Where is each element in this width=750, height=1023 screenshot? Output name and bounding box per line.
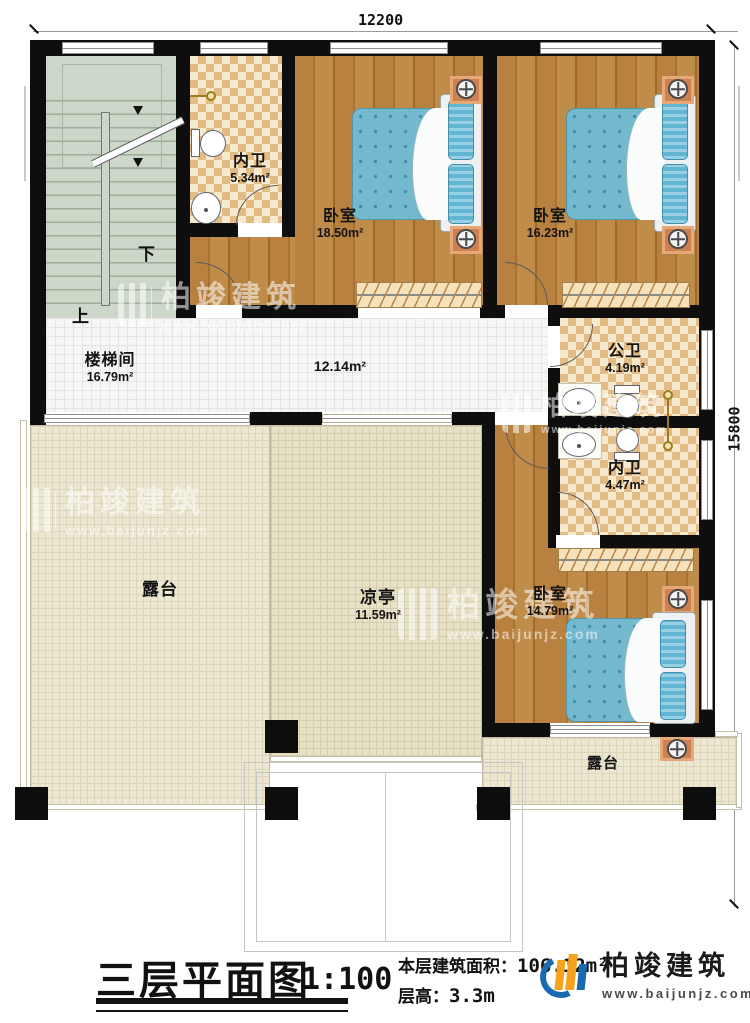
porch-ridge-line <box>385 772 386 942</box>
corridor-window <box>44 414 250 423</box>
bedroom2-label: 卧室 16.23m² <box>500 208 600 241</box>
towel-rail-knob-icon <box>206 91 216 101</box>
sink-icon <box>191 192 221 224</box>
wall-stair-right <box>176 56 190 318</box>
stairwell-window <box>62 42 154 54</box>
stair-direction-arrow <box>133 106 143 115</box>
dimension-tick <box>29 24 39 34</box>
wall-bedroom3-left <box>482 412 495 737</box>
title-underline-thin <box>96 1010 348 1012</box>
floor-plan: 12200 15800 <box>0 0 750 1023</box>
floor-area-label: 本层建筑面积： <box>398 957 517 976</box>
pillow <box>662 164 688 224</box>
dimension-line-top <box>33 31 738 32</box>
lamp-icon <box>668 79 688 99</box>
towel-rail-icon <box>667 395 669 445</box>
terrace-parapet <box>20 420 27 810</box>
floor-height-row: 层高：3.3m <box>398 982 495 1007</box>
lamp-icon <box>668 229 688 249</box>
wall-corridor-top <box>190 305 196 318</box>
wall-bath-divider <box>548 416 699 428</box>
bath-top-window <box>200 42 268 54</box>
wall-corridor-top <box>480 305 505 318</box>
drawing-scale: 1:100 <box>302 962 392 997</box>
lamp-icon <box>456 79 476 99</box>
pillar <box>683 787 716 820</box>
stair-up-label: 上 <box>72 302 89 327</box>
bedroom3-label: 卧室 14.79m² <box>500 586 600 619</box>
terrace-right-label: 露台 <box>568 755 638 772</box>
sink-icon <box>562 388 596 414</box>
terrace-left-label: 露台 <box>120 580 200 600</box>
stair-down-label: 下 <box>138 240 155 265</box>
corridor-label: 12.14m² <box>295 358 385 374</box>
toilet-icon <box>616 428 639 452</box>
bath-top-label: 内卫 5.34m² <box>205 153 295 186</box>
brand-logo: 柏竣建筑 www.baijunjz.com <box>540 948 750 1004</box>
bath-mid-label: 内卫 4.47m² <box>590 460 660 493</box>
wall-bedroom3-bottom <box>650 723 715 737</box>
pillar <box>265 720 298 753</box>
pavilion-sliding-door <box>322 414 452 423</box>
lamp-icon <box>668 589 688 609</box>
brand-url: www.baijunjz.com <box>602 987 750 1000</box>
stair-rail <box>101 112 110 306</box>
toilet-icon <box>616 394 639 418</box>
pillow <box>660 672 686 720</box>
pillar <box>15 787 48 820</box>
pillow <box>660 620 686 668</box>
lamp-icon <box>667 739 687 759</box>
pillow <box>448 100 474 160</box>
wall-bath-mid-bottom <box>548 535 556 548</box>
bath-mid-window <box>701 440 713 520</box>
bedroom3-window-bottom <box>550 725 650 734</box>
wall-corridor-bottom <box>250 412 322 425</box>
wardrobe <box>558 548 694 572</box>
pavilion-label: 凉亭 11.59m² <box>335 588 421 622</box>
wall-bedroom3-bottom <box>495 723 550 737</box>
terrace-parapet <box>736 733 742 808</box>
pillar <box>265 787 298 820</box>
wall-bedroom-divider <box>483 56 497 318</box>
toilet-icon <box>614 385 640 394</box>
bedroom3-floor <box>495 425 548 723</box>
floor-height-value: 3.3m <box>449 985 495 1007</box>
dimension-tick <box>706 24 716 34</box>
wall-corridor-top <box>242 305 358 318</box>
dimension-right-value: 15800 <box>726 406 744 451</box>
wardrobe <box>356 282 482 308</box>
dimension-top-value: 12200 <box>358 11 403 29</box>
floor-height-label: 层高： <box>398 987 449 1006</box>
brand-logo-icon <box>540 948 592 1004</box>
lamp-icon <box>456 229 476 249</box>
stair-direction-arrow <box>133 158 143 167</box>
roof-edge-line <box>24 86 26 181</box>
bedroom3-window-right <box>701 600 713 710</box>
wardrobe <box>562 282 690 308</box>
wall-bath-mid-bottom <box>600 535 699 548</box>
public-bath-label: 公卫 4.19m² <box>590 343 660 376</box>
bedroom1-window <box>330 42 448 54</box>
sink-icon <box>562 432 596 457</box>
stairwell-label: 楼梯间 16.79m² <box>50 352 170 385</box>
pillow <box>662 100 688 160</box>
bedroom1-label: 卧室 18.50m² <box>290 208 390 241</box>
pillow <box>448 164 474 224</box>
terrace-parapet <box>20 804 276 810</box>
toilet-icon <box>191 129 200 157</box>
pillar <box>477 787 510 820</box>
wall-exterior-left <box>30 56 46 425</box>
towel-rail-knob-icon <box>663 390 673 400</box>
terrace-parapet <box>715 731 738 737</box>
brand-name: 柏竣建筑 <box>602 953 750 980</box>
towel-rail-knob-icon <box>663 441 673 451</box>
public-bath-window <box>701 330 713 410</box>
title-underline <box>96 998 348 1004</box>
wall-bath-top-bottom <box>190 223 238 237</box>
roof-edge-line <box>738 86 740 181</box>
terrace-left-floor <box>30 425 270 805</box>
bedroom2-window <box>540 42 662 54</box>
